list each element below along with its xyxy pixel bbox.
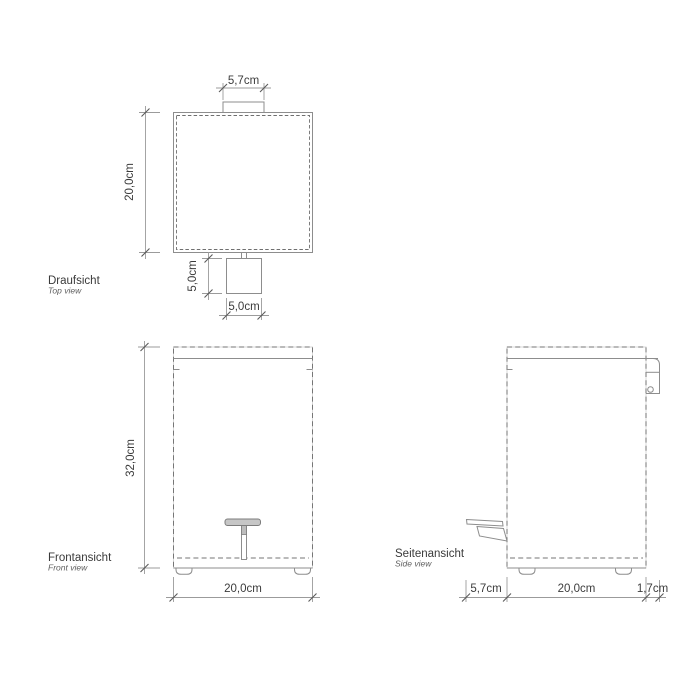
dim-label: 5,7cm xyxy=(470,583,501,595)
dim-label: 20,0cm xyxy=(224,583,262,595)
side-foot-front xyxy=(519,568,535,574)
top-view-pedal-link xyxy=(242,253,247,259)
technical-drawing-page: 5,7cm 20,0cm 5,0cm 5,0cm xyxy=(0,0,700,700)
dim-front-height: 32,0cm xyxy=(125,341,160,574)
top-view-pedal xyxy=(227,259,262,294)
side-view-subtitle: Side view xyxy=(395,559,432,569)
top-view-body-outline xyxy=(174,113,313,253)
side-foot-back xyxy=(616,568,632,574)
side-pedal-plate xyxy=(467,520,504,527)
side-view: 5,7cm 20,0cm 1,7cm Seitenansicht Side vi… xyxy=(395,347,668,602)
top-view: 5,7cm 20,0cm 5,0cm 5,0cm xyxy=(48,75,313,320)
front-foot-right xyxy=(295,568,311,574)
dim-label: 1,7cm xyxy=(637,583,668,595)
front-view-subtitle: Front view xyxy=(48,563,88,573)
dim-label: 5,0cm xyxy=(228,301,259,313)
front-pedal-bar xyxy=(225,519,261,526)
top-view-subtitle: Top view xyxy=(48,286,82,296)
dim-front-width: 20,0cm xyxy=(166,577,320,602)
front-foot-left xyxy=(176,568,192,574)
dim-top-body-depth: 20,0cm xyxy=(124,106,160,259)
side-pedal-arm xyxy=(477,527,507,542)
top-view-lid-knob xyxy=(223,102,264,113)
side-wall-bracket-hole xyxy=(648,387,654,393)
front-pedal-stem-top xyxy=(242,526,247,535)
dim-label: 20,0cm xyxy=(558,583,596,595)
side-body-outline xyxy=(507,347,646,568)
technical-drawing: 5,7cm 20,0cm 5,0cm 5,0cm xyxy=(0,0,700,700)
dim-top-pedal-width: 5,0cm xyxy=(219,298,269,320)
side-pedal xyxy=(467,520,508,542)
dim-label: 5,7cm xyxy=(228,75,259,87)
side-wall-bracket xyxy=(646,359,660,394)
dim-label: 32,0cm xyxy=(125,439,137,477)
dim-label: 5,0cm xyxy=(187,260,199,291)
dim-label: 20,0cm xyxy=(124,163,136,201)
side-body-underline xyxy=(507,347,646,568)
dim-side-chain: 5,7cm 20,0cm 1,7cm xyxy=(459,577,668,602)
dim-top-pedal-depth: 5,0cm xyxy=(187,252,222,300)
front-view: 32,0cm 20,0cm Frontansicht Front view xyxy=(48,341,320,602)
dim-top-knob-width: 5,7cm xyxy=(216,75,271,100)
